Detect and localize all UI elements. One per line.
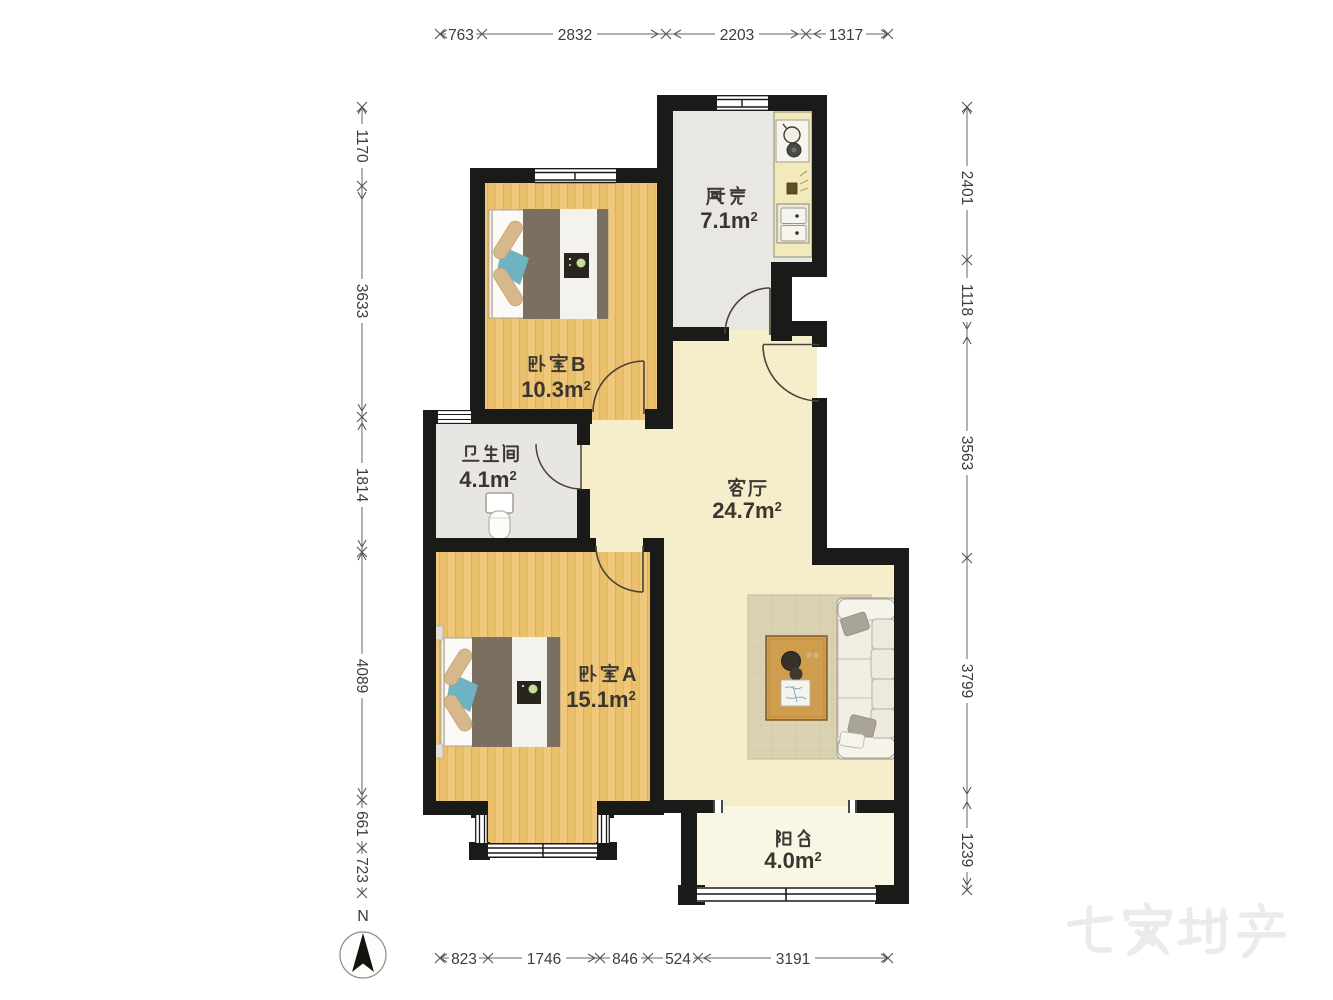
svg-text:3563: 3563 — [958, 436, 975, 470]
svg-text:823: 823 — [451, 951, 477, 968]
svg-text:1317: 1317 — [829, 27, 863, 44]
svg-text:4089: 4089 — [353, 659, 370, 693]
svg-text:B: B — [571, 354, 585, 376]
svg-text:3191: 3191 — [776, 951, 810, 968]
svg-text:763: 763 — [448, 27, 474, 44]
svg-text:2401: 2401 — [958, 171, 975, 205]
svg-text:3799: 3799 — [958, 664, 975, 698]
svg-text:24.7m2: 24.7m2 — [712, 498, 782, 523]
svg-text:3633: 3633 — [353, 284, 370, 318]
svg-text:1814: 1814 — [353, 468, 370, 503]
svg-text:4.1m2: 4.1m2 — [459, 467, 516, 492]
svg-text:1239: 1239 — [958, 833, 975, 867]
svg-text:1170: 1170 — [353, 129, 370, 163]
svg-text:2203: 2203 — [720, 27, 754, 44]
svg-text:2832: 2832 — [558, 27, 592, 44]
svg-text:7.1m2: 7.1m2 — [700, 208, 757, 233]
svg-text:661: 661 — [353, 811, 370, 837]
svg-text:524: 524 — [665, 951, 691, 968]
svg-text:1746: 1746 — [527, 951, 561, 968]
svg-text:N: N — [357, 908, 369, 925]
svg-text:A: A — [622, 664, 636, 686]
svg-text:846: 846 — [612, 951, 638, 968]
svg-text:723: 723 — [353, 857, 370, 883]
svg-text:15.1m2: 15.1m2 — [566, 687, 636, 712]
svg-text:1118: 1118 — [958, 284, 975, 316]
svg-text:10.3m2: 10.3m2 — [521, 377, 591, 402]
svg-text:4.0m2: 4.0m2 — [764, 848, 821, 873]
